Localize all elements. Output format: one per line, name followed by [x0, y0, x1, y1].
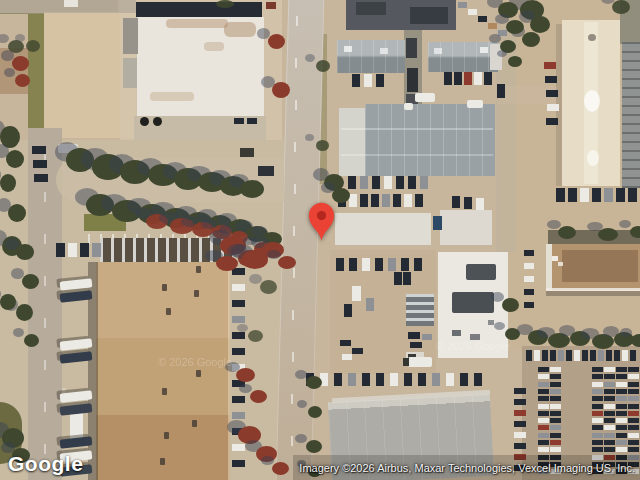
- car-column: [538, 374, 549, 379]
- tree: [528, 330, 548, 345]
- car-column: [604, 447, 615, 452]
- car-column: [592, 374, 603, 379]
- tree: [24, 334, 39, 347]
- clutter: [406, 38, 417, 58]
- tree: [506, 20, 524, 34]
- tree: [306, 440, 322, 453]
- red-tree: [238, 426, 261, 444]
- car-row: [460, 373, 468, 386]
- lane-dash: [292, 310, 294, 320]
- roof-stain: [166, 19, 228, 28]
- car-row: [464, 72, 472, 85]
- red-tree: [236, 368, 255, 382]
- building-dark-roof: [136, 2, 262, 17]
- car-row: [545, 76, 557, 83]
- lane-dash: [291, 394, 293, 404]
- car-row: [558, 350, 564, 361]
- car-row: [34, 174, 48, 182]
- car-row: [568, 188, 577, 202]
- car-column: [628, 404, 639, 409]
- roof-vent: [196, 266, 201, 273]
- car-row: [360, 176, 368, 189]
- car-column: [604, 404, 615, 409]
- tree: [6, 150, 24, 168]
- rooftop-tank: [153, 117, 162, 126]
- car-row: [582, 350, 588, 361]
- red-tree: [272, 82, 290, 98]
- tree: [240, 180, 264, 198]
- car-row: [415, 194, 423, 207]
- car-column: [538, 418, 549, 423]
- car-column: [550, 396, 561, 401]
- tree: [631, 334, 640, 347]
- car-row: [349, 194, 357, 207]
- lane-dash: [294, 184, 296, 194]
- tree: [2, 428, 24, 448]
- car-row: [474, 373, 482, 386]
- car-row: [352, 74, 360, 87]
- car-column: [628, 433, 639, 438]
- car-row: [420, 176, 428, 189]
- car-row: [362, 258, 370, 271]
- lane-dash: [293, 268, 295, 278]
- roof-vent: [552, 256, 558, 261]
- pin-body: [308, 203, 333, 241]
- red-tree: [192, 222, 214, 237]
- car-column: [628, 425, 639, 430]
- tree: [500, 40, 516, 53]
- car-column: [538, 447, 549, 452]
- car-row: [364, 74, 372, 87]
- car-row: [556, 188, 565, 202]
- car-row: [382, 194, 390, 207]
- car-column: [604, 389, 615, 394]
- car-column: [538, 433, 549, 438]
- car-column: [604, 396, 615, 401]
- tree: [522, 32, 540, 47]
- dumpster: [240, 148, 254, 157]
- car-row: [362, 373, 370, 386]
- car-column: [628, 418, 639, 423]
- car-column: [538, 411, 549, 416]
- car-row: [524, 250, 534, 256]
- tree: [558, 226, 576, 239]
- car-column: [538, 389, 549, 394]
- car-column: [604, 367, 615, 372]
- tree: [508, 56, 522, 67]
- car-column: [232, 444, 245, 451]
- car-column: [538, 440, 549, 445]
- car-row: [616, 188, 625, 202]
- car-column: [628, 440, 639, 445]
- lane-dash: [44, 360, 46, 370]
- car-column: [628, 382, 639, 387]
- car-row: [614, 350, 620, 361]
- car-row: [404, 194, 412, 207]
- car-row: [547, 104, 559, 111]
- roof-vent: [192, 420, 197, 427]
- car-row: [524, 263, 534, 269]
- car-column: [550, 389, 561, 394]
- car-column: [592, 396, 603, 401]
- skylight: [380, 48, 388, 54]
- building-shadow: [546, 291, 640, 296]
- car-column: [232, 316, 245, 323]
- map-watermark: © 2026 Google: [436, 340, 510, 352]
- lane-dash: [292, 352, 294, 362]
- car-row: [474, 72, 482, 85]
- attribution-text: Imagery ©2026 Airbus, Maxar Technologies…: [299, 462, 635, 474]
- lane-dash: [44, 402, 46, 412]
- car-column: [616, 374, 627, 379]
- car-row: [524, 276, 534, 282]
- location-pin-icon[interactable]: [308, 202, 335, 242]
- white-car: [352, 286, 361, 301]
- roof-vent: [196, 370, 201, 377]
- car-row: [524, 289, 534, 295]
- junk-row: [488, 23, 497, 29]
- car-row: [80, 243, 89, 257]
- car-column: [232, 332, 245, 339]
- car: [394, 272, 402, 285]
- lane-dash: [44, 318, 46, 328]
- roof-vent: [584, 90, 600, 112]
- skylight: [480, 47, 488, 53]
- car-row: [56, 243, 65, 257]
- car-column: [550, 418, 561, 423]
- tree: [498, 2, 518, 18]
- tree: [612, 0, 630, 14]
- car-column: [604, 418, 615, 423]
- lane-dash: [293, 226, 295, 236]
- junk-row: [478, 16, 487, 22]
- car-row: [32, 146, 46, 154]
- car-column: [550, 433, 561, 438]
- car-column: [592, 404, 603, 409]
- roof-vent: [488, 320, 494, 325]
- car-row: [348, 176, 356, 189]
- car-row: [247, 118, 257, 124]
- building-units: [335, 213, 431, 245]
- tree: [66, 148, 94, 172]
- lane-dash: [291, 436, 293, 446]
- red-car: [266, 2, 276, 9]
- roof-vent: [162, 284, 167, 291]
- car-column: [604, 440, 615, 445]
- car-row: [546, 90, 558, 97]
- car-row: [598, 350, 604, 361]
- tree: [92, 154, 124, 180]
- tree: [8, 40, 24, 53]
- lane-dash: [295, 100, 297, 110]
- car-column: [604, 425, 615, 430]
- car-column: [514, 410, 526, 416]
- car-column: [592, 433, 603, 438]
- car-column: [604, 382, 615, 387]
- car-row: [418, 373, 426, 386]
- car-column: [628, 396, 639, 401]
- car-column: [592, 389, 603, 394]
- roof-section: [410, 7, 448, 24]
- car-column: [628, 367, 639, 372]
- tree: [308, 406, 322, 418]
- roof-vent: [164, 432, 169, 439]
- car-row: [580, 188, 589, 202]
- car: [410, 342, 422, 348]
- car: [408, 332, 420, 339]
- car-column: [616, 418, 627, 423]
- car-row: [33, 160, 47, 168]
- clutter: [407, 68, 418, 92]
- car-column: [592, 425, 603, 430]
- tree: [0, 174, 16, 192]
- car-row: [371, 194, 379, 207]
- car: [422, 334, 432, 340]
- white-trailer: [408, 357, 432, 367]
- car-column: [232, 396, 245, 403]
- car-column: [616, 389, 627, 394]
- junk-row: [458, 2, 467, 8]
- tree: [502, 298, 519, 312]
- car-column: [514, 388, 526, 394]
- car-row: [384, 176, 392, 189]
- car-column: [538, 382, 549, 387]
- tree: [16, 244, 34, 260]
- car-column: [604, 374, 615, 379]
- skylight: [434, 48, 442, 54]
- car-column: [616, 447, 627, 452]
- building-left-edge: [0, 48, 28, 94]
- car-column: [604, 433, 615, 438]
- car-row: [349, 258, 357, 271]
- car-column: [628, 374, 639, 379]
- car-row: [336, 258, 344, 271]
- tree: [306, 376, 322, 389]
- building-annex: [123, 18, 138, 54]
- tree: [8, 204, 26, 222]
- junk-row: [468, 9, 477, 15]
- car-row: [388, 258, 396, 271]
- tree: [26, 40, 40, 52]
- car-row: [550, 350, 556, 361]
- car-row: [630, 350, 636, 361]
- red-tree: [170, 218, 194, 234]
- building-warehouse: [96, 262, 230, 480]
- car-column: [616, 404, 627, 409]
- car: [340, 340, 351, 346]
- box-truck: [70, 412, 83, 440]
- car-column: [538, 396, 549, 401]
- car-row: [566, 350, 572, 361]
- roof-vent: [166, 308, 171, 315]
- tree: [148, 164, 178, 186]
- car-row: [454, 72, 462, 85]
- car-column: [616, 425, 627, 430]
- tree: [86, 194, 114, 216]
- tree: [570, 331, 590, 346]
- car-column: [592, 382, 603, 387]
- lane-dash: [295, 58, 297, 68]
- red-tree: [256, 446, 277, 462]
- car-row: [606, 350, 612, 361]
- tree: [530, 16, 550, 33]
- carport-canopies: [406, 294, 434, 326]
- roof-stain: [150, 92, 194, 101]
- car-row: [628, 188, 637, 202]
- building-annex: [123, 58, 137, 88]
- car-row: [464, 197, 472, 209]
- car-row: [401, 258, 409, 271]
- roof-stain: [224, 22, 256, 37]
- tree: [598, 228, 618, 241]
- car-row: [348, 373, 356, 386]
- car-row: [590, 350, 596, 361]
- lane-dash: [44, 234, 46, 244]
- car-row: [524, 302, 534, 308]
- car-row: [604, 188, 613, 202]
- tree: [548, 333, 570, 348]
- car-row: [622, 350, 628, 361]
- roof-vent: [588, 34, 596, 41]
- dumpster-blue: [433, 216, 442, 230]
- roof-ridge-line: [341, 128, 493, 130]
- tree: [216, 0, 234, 8]
- red-tree: [250, 390, 267, 403]
- car-row: [396, 176, 404, 189]
- roof-ridge-line: [341, 154, 493, 156]
- car-row: [408, 176, 416, 189]
- car-column: [592, 440, 603, 445]
- car-column: [232, 412, 245, 419]
- car-column: [592, 447, 603, 452]
- car-column: [550, 411, 561, 416]
- trailer-dock-row: [100, 238, 234, 262]
- car: [546, 118, 558, 125]
- car-column: [616, 396, 627, 401]
- white-van: [404, 103, 413, 110]
- building-units: [440, 210, 492, 245]
- car-row: [526, 350, 532, 361]
- tree: [332, 188, 350, 203]
- car-column: [232, 348, 245, 355]
- car-column: [514, 399, 526, 405]
- car-column: [514, 432, 526, 438]
- car-row: [446, 373, 454, 386]
- car: [403, 272, 411, 285]
- car-column: [538, 425, 549, 430]
- car-row: [484, 72, 492, 85]
- red-tree: [15, 74, 30, 87]
- building-industrial: [365, 104, 495, 176]
- car-row: [393, 194, 401, 207]
- red-tree: [12, 56, 29, 71]
- car-column: [616, 433, 627, 438]
- car-column: [550, 447, 561, 452]
- car-row: [592, 188, 601, 202]
- car-column: [628, 447, 639, 452]
- tree: [22, 274, 39, 289]
- car-row: [574, 350, 580, 361]
- car-column: [616, 440, 627, 445]
- dumpster: [258, 166, 274, 176]
- car-row: [452, 196, 460, 208]
- car-column: [232, 300, 245, 307]
- building-gabled: [337, 40, 405, 73]
- white-truck: [467, 100, 483, 108]
- car-column: [592, 367, 603, 372]
- google-logo[interactable]: Google: [8, 452, 83, 476]
- lane-dash: [44, 276, 46, 286]
- truck: [64, 0, 78, 7]
- junk-row: [498, 30, 507, 36]
- car: [352, 348, 363, 354]
- car-row: [334, 373, 342, 386]
- lane-dash: [44, 192, 46, 202]
- car-row: [360, 194, 368, 207]
- car-row: [544, 62, 556, 69]
- car-column: [616, 367, 627, 372]
- car-column: [550, 367, 561, 372]
- tree: [505, 328, 520, 340]
- roof-inset: [562, 250, 638, 282]
- car-row: [92, 243, 101, 257]
- car: [342, 354, 352, 360]
- red-tree: [272, 462, 289, 475]
- car-row: [376, 373, 384, 386]
- car-column: [550, 404, 561, 409]
- car-row: [68, 243, 77, 257]
- car-column: [628, 389, 639, 394]
- attribution-bar: Imagery ©2026 Airbus, Maxar Technologies…: [293, 455, 640, 480]
- car-row: [390, 373, 398, 386]
- red-tree: [216, 256, 238, 271]
- car-column: [550, 382, 561, 387]
- tree: [316, 60, 330, 72]
- car-column: [514, 421, 526, 427]
- roof-vent: [452, 330, 461, 336]
- car-column: [628, 411, 639, 416]
- satellite-map[interactable]: © 2026 Google © 2026 Google Google Image…: [0, 0, 640, 480]
- tree: [16, 304, 33, 321]
- map-watermark: © 2026 Google: [158, 356, 232, 368]
- car-column: [232, 460, 245, 467]
- car-row: [404, 373, 412, 386]
- car: [366, 298, 374, 311]
- car-column: [550, 374, 561, 379]
- tree: [120, 160, 150, 184]
- car-column: [550, 440, 561, 445]
- car: [497, 84, 505, 98]
- tree: [0, 126, 20, 148]
- skylight: [344, 46, 352, 52]
- tree: [0, 294, 16, 310]
- car-row: [476, 198, 484, 210]
- tree: [316, 140, 329, 151]
- car-row: [414, 258, 422, 271]
- car-row: [534, 350, 540, 361]
- truck-cab: [403, 358, 409, 366]
- roof-stain: [204, 42, 224, 51]
- car-column: [514, 443, 526, 449]
- roof-vent: [194, 290, 199, 297]
- lane-dash: [296, 16, 298, 26]
- red-tree: [278, 256, 296, 269]
- car-row: [234, 118, 244, 124]
- red-tree: [268, 34, 285, 49]
- tree: [248, 330, 263, 342]
- car-row: [444, 72, 452, 85]
- car-row: [432, 373, 440, 386]
